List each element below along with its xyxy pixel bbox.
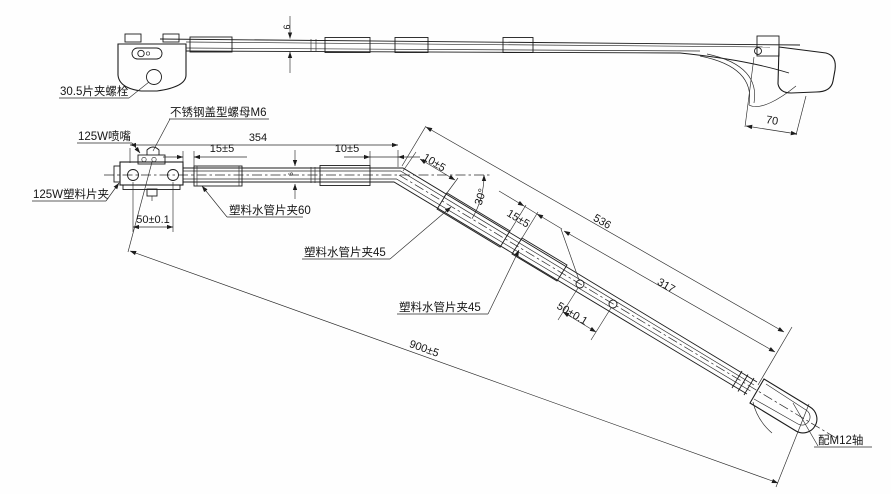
label-hose-clip-60: 塑料水管片夹60: [202, 186, 311, 217]
label-m12-shaft: 配M12轴: [814, 433, 872, 447]
dim-536: 536: [402, 126, 792, 385]
hose-clip-45-second-part: [512, 238, 567, 281]
head-tab-left: [125, 34, 141, 42]
label-text-hose-clip-60: 塑料水管片夹60: [229, 203, 311, 217]
label-text-clamp-bolt: 30.5片夹螺栓: [60, 84, 129, 98]
label-hose-clip-45-second: 塑料水管片夹45: [397, 250, 519, 314]
arm-shaft-top: [160, 37, 800, 73]
hose-top-2: [707, 54, 755, 103]
wiper-head-top: [118, 34, 186, 91]
dim-tube-height: 6: [288, 150, 295, 199]
hose-clip-mid-part: [320, 166, 370, 186]
dim-text-15-slant: 15±5: [504, 208, 531, 231]
hose-top-1: [700, 56, 750, 105]
dim-10-horizontal: 10±5: [335, 143, 420, 166]
head-slot: [132, 48, 162, 59]
dim-angle-30: 30°: [472, 175, 489, 219]
head-tab-right: [163, 34, 179, 42]
end-cover: [778, 47, 835, 93]
dim-text-50-slant: 50±0.1: [555, 300, 590, 328]
nozzle-assembly: [138, 147, 165, 201]
dim-text-30deg: 30°: [473, 187, 489, 206]
dim-15-horizontal: 15±5: [163, 143, 247, 166]
label-plastic-clip: 125W塑料片夹: [32, 183, 119, 201]
label-hose-clip-45-first: 塑料水管片夹45: [302, 207, 451, 259]
cad-drawing-sheet: 6 70 30.5片夹螺栓: [0, 0, 891, 494]
hose-top-3: [749, 86, 796, 107]
arm-clip-3: [395, 38, 428, 53]
label-text-nozzle: 125W喷嘴: [78, 130, 132, 143]
nozzle-stem: [147, 189, 157, 196]
dim-text-tube-height: 6: [288, 172, 295, 176]
label-text-hose-clip-45-first: 塑料水管片夹45: [304, 245, 386, 259]
dim-900: 900±5: [128, 162, 778, 483]
dim-15-slant: 15±5: [499, 191, 562, 243]
dim-text-536: 536: [591, 212, 613, 232]
label-nozzle: 125W喷嘴: [77, 130, 140, 153]
wiper-arm-technical-drawing: 6 70 30.5片夹螺栓: [0, 0, 891, 494]
hook-end-main: [750, 379, 818, 487]
dim-text-10-horizontal: 10±5: [335, 143, 359, 155]
dim-text-50-horizontal: 50±0.1: [136, 214, 170, 226]
slot-pin: [138, 50, 144, 56]
end-clamp: [757, 36, 779, 56]
dim-text-top-6: 6: [282, 24, 292, 29]
label-text-cap-nut: 不锈钢盖型螺母M6: [170, 105, 266, 119]
main-view: 354 15±5 10±5 50±0.1 6: [32, 105, 872, 487]
tube-horizontal: [183, 166, 757, 395]
label-text-plastic-clip: 125W塑料片夹: [33, 187, 109, 201]
dim-text-15-horizontal: 15±5: [210, 143, 234, 155]
label-text-m12-shaft: 配M12轴: [818, 433, 863, 447]
dim-text-317: 317: [655, 276, 677, 296]
hose-clip-60-part: [194, 166, 242, 186]
dim-10-slant: 10±5: [403, 152, 458, 197]
cover-pin: [755, 48, 762, 55]
arm-clip-2: [325, 38, 370, 53]
label-text-hose-clip-45-second: 塑料水管片夹45: [399, 300, 481, 314]
dim-317: 317: [561, 229, 775, 352]
dim-top-arm-height: 6: [282, 16, 292, 73]
dim-text-10-slant: 10±5: [420, 152, 447, 175]
dim-text-354: 354: [249, 132, 267, 144]
dim-text-70: 70: [765, 114, 779, 128]
